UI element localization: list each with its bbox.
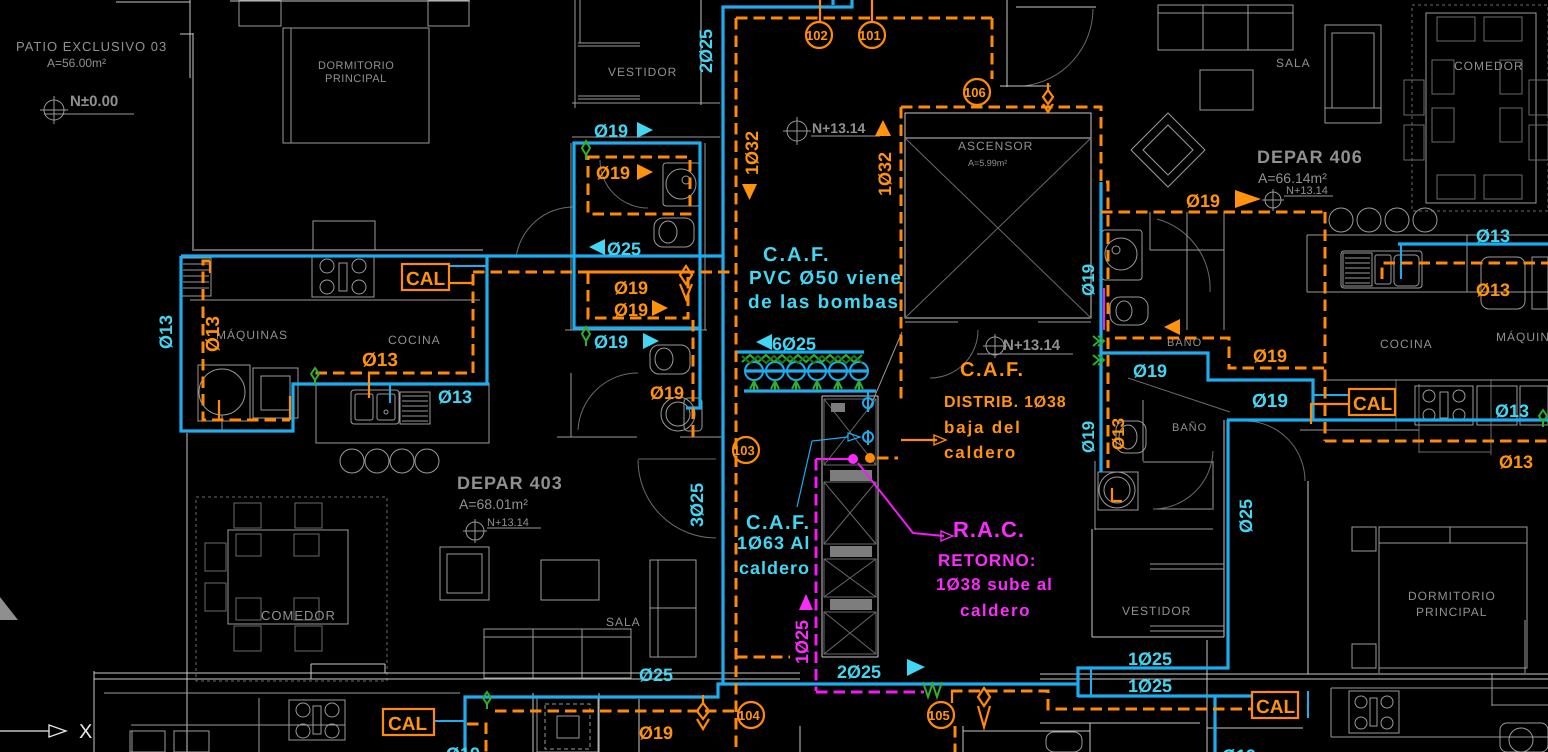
svg-text:DEPAR 403: DEPAR 403 bbox=[457, 473, 563, 493]
svg-text:Ø13: Ø13 bbox=[1109, 418, 1128, 450]
svg-text:R.A.C.: R.A.C. bbox=[953, 517, 1025, 542]
svg-text:PRINCIPAL: PRINCIPAL bbox=[325, 73, 387, 85]
svg-text:Ø19: Ø19 bbox=[594, 121, 628, 141]
svg-text:Ø13: Ø13 bbox=[156, 315, 176, 349]
svg-text:DORMITORIO: DORMITORIO bbox=[318, 60, 394, 72]
svg-text:1Ø25: 1Ø25 bbox=[1128, 649, 1172, 669]
svg-text:Ø19: Ø19 bbox=[1133, 361, 1167, 381]
svg-text:A=68.01m²: A=68.01m² bbox=[459, 496, 528, 512]
svg-text:103: 103 bbox=[733, 443, 755, 458]
svg-text:Ø13: Ø13 bbox=[1495, 401, 1529, 421]
svg-text:N+13.14: N+13.14 bbox=[487, 517, 529, 529]
svg-text:N+13.14: N+13.14 bbox=[812, 120, 866, 136]
svg-text:Ø13: Ø13 bbox=[203, 316, 224, 352]
svg-text:A=66.14m²: A=66.14m² bbox=[1258, 170, 1327, 186]
svg-text:Ø19: Ø19 bbox=[1252, 391, 1288, 412]
svg-text:Ø13: Ø13 bbox=[438, 387, 472, 407]
svg-text:Ø25: Ø25 bbox=[639, 665, 673, 685]
svg-text:105: 105 bbox=[928, 708, 950, 723]
svg-text:C.A.F.: C.A.F. bbox=[746, 512, 811, 534]
svg-text:CAL: CAL bbox=[1353, 394, 1392, 415]
svg-text:COMEDOR: COMEDOR bbox=[261, 608, 336, 623]
svg-text:A=56.00m²: A=56.00m² bbox=[47, 56, 106, 70]
svg-text:DORMITORIO: DORMITORIO bbox=[1408, 589, 1496, 603]
svg-text:COCINA: COCINA bbox=[388, 333, 441, 347]
svg-text:COMEDOR: COMEDOR bbox=[1454, 59, 1524, 73]
svg-text:VESTIDOR: VESTIDOR bbox=[1122, 604, 1191, 618]
svg-text:101: 101 bbox=[859, 28, 881, 43]
svg-text:1Ø25: 1Ø25 bbox=[792, 620, 812, 664]
svg-text:N±0.00: N±0.00 bbox=[70, 93, 118, 110]
svg-text:Ø13: Ø13 bbox=[1499, 452, 1533, 472]
svg-text:MÁQUINAS: MÁQUINAS bbox=[1496, 330, 1548, 344]
svg-text:Ø25: Ø25 bbox=[1236, 499, 1256, 533]
svg-text:1Ø63 Al: 1Ø63 Al bbox=[737, 533, 810, 553]
svg-text:Ø13: Ø13 bbox=[1476, 280, 1510, 300]
svg-text:1Ø32: 1Ø32 bbox=[742, 131, 762, 175]
svg-text:Ø19: Ø19 bbox=[1079, 421, 1098, 453]
svg-text:104: 104 bbox=[738, 708, 760, 723]
svg-text:1Ø25: 1Ø25 bbox=[1128, 676, 1172, 696]
svg-text:X: X bbox=[79, 721, 92, 743]
svg-text:PRINCIPAL: PRINCIPAL bbox=[1416, 605, 1487, 619]
svg-text:CAL: CAL bbox=[406, 269, 445, 290]
svg-text:ASCENSOR: ASCENSOR bbox=[958, 139, 1033, 153]
svg-text:1Ø32: 1Ø32 bbox=[875, 152, 895, 196]
svg-text:VESTIDOR: VESTIDOR bbox=[608, 65, 677, 79]
svg-text:SALA: SALA bbox=[606, 615, 641, 629]
svg-text:Ø19: Ø19 bbox=[614, 278, 648, 298]
svg-text:caldero: caldero bbox=[739, 558, 810, 578]
svg-text:Ø19: Ø19 bbox=[1222, 746, 1256, 752]
svg-text:de las bombas: de las bombas bbox=[748, 292, 900, 313]
svg-text:Ø19: Ø19 bbox=[1079, 264, 1098, 296]
svg-text:CAL: CAL bbox=[388, 714, 427, 735]
svg-text:Ø19: Ø19 bbox=[1186, 191, 1220, 211]
svg-text:DEPAR 406: DEPAR 406 bbox=[1257, 147, 1363, 167]
svg-text:Ø19: Ø19 bbox=[1253, 346, 1287, 366]
svg-text:3Ø25: 3Ø25 bbox=[687, 483, 707, 527]
svg-text:BAÑO: BAÑO bbox=[1172, 421, 1207, 434]
svg-text:N+13.14: N+13.14 bbox=[1286, 185, 1328, 197]
svg-text:Ø19: Ø19 bbox=[614, 300, 648, 320]
svg-text:caldero: caldero bbox=[960, 601, 1031, 620]
svg-text:Ø19: Ø19 bbox=[650, 383, 684, 403]
svg-text:C.A.F.: C.A.F. bbox=[763, 244, 831, 266]
svg-text:A=5.99m²: A=5.99m² bbox=[968, 158, 1007, 168]
svg-text:PVC Ø50 viene: PVC Ø50 viene bbox=[749, 268, 903, 289]
svg-text:caldero: caldero bbox=[944, 443, 1017, 462]
svg-text:SALA: SALA bbox=[1276, 56, 1311, 70]
svg-text:Ø19: Ø19 bbox=[639, 723, 673, 743]
svg-text:N+13.14: N+13.14 bbox=[1003, 337, 1061, 354]
svg-text:Ø25: Ø25 bbox=[607, 239, 641, 259]
svg-text:102: 102 bbox=[806, 28, 828, 43]
svg-text:PATIO EXCLUSIVO 03: PATIO EXCLUSIVO 03 bbox=[16, 39, 167, 54]
svg-text:RETORNO:: RETORNO: bbox=[938, 551, 1036, 570]
svg-text:baja del: baja del bbox=[944, 418, 1022, 437]
svg-text:Ø19: Ø19 bbox=[446, 744, 480, 752]
svg-text:106: 106 bbox=[964, 85, 986, 100]
svg-text:Ø19: Ø19 bbox=[596, 163, 630, 183]
svg-text:COCINA: COCINA bbox=[1380, 337, 1433, 351]
svg-text:1Ø38 sube al: 1Ø38 sube al bbox=[936, 575, 1053, 594]
svg-text:MÁQUINAS: MÁQUINAS bbox=[216, 328, 288, 342]
svg-text:Ø19: Ø19 bbox=[594, 332, 628, 352]
svg-text:Ø13: Ø13 bbox=[1476, 226, 1510, 246]
svg-text:2Ø25: 2Ø25 bbox=[696, 29, 716, 73]
svg-text:Ø13: Ø13 bbox=[362, 350, 398, 371]
svg-text:DISTRIB. 1Ø38: DISTRIB. 1Ø38 bbox=[944, 394, 1066, 411]
svg-text:CAL: CAL bbox=[1256, 697, 1295, 718]
svg-text:2Ø25: 2Ø25 bbox=[837, 662, 881, 682]
svg-text:C.A.F.: C.A.F. bbox=[960, 359, 1025, 381]
